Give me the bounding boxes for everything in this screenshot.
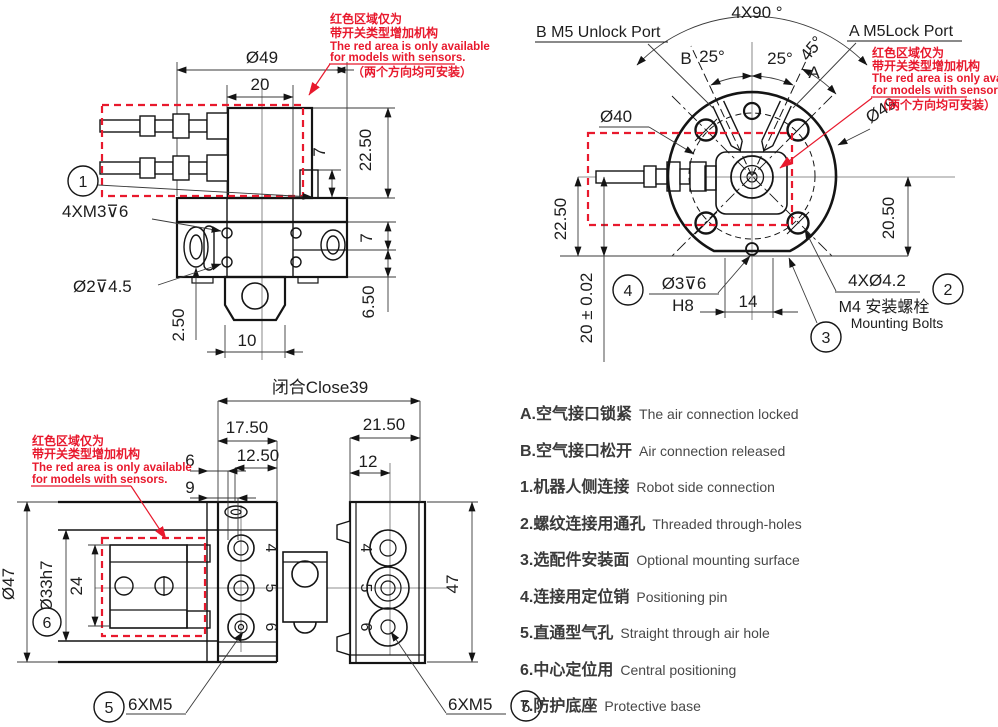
dim-d40: Ø40 xyxy=(600,107,632,126)
top-sensor-rod xyxy=(596,162,706,191)
dim-25-left: 25° xyxy=(699,47,725,66)
legend-item-7-cn: 7.防护底座 xyxy=(520,698,597,715)
dim-1250: 12.50 xyxy=(237,446,280,465)
legend-item-6-en: Central positioning xyxy=(620,662,736,678)
balloon-5-left-label: 5 xyxy=(105,700,114,717)
label-m4-cn: M4 安装螺栓 xyxy=(839,298,930,316)
legend-item-1: 1.机器人侧连接Robot side connection xyxy=(520,473,995,497)
sensor-area-highlight-side xyxy=(102,538,205,636)
legend-item-2-cn: 2.螺纹连接用通孔 xyxy=(520,516,645,533)
label-port-b-letter: B xyxy=(680,49,691,68)
note-cn1: 红色区域仅为 xyxy=(330,11,402,26)
top-linear-dims xyxy=(560,177,908,362)
dim-4x90: 4X90 ° xyxy=(731,3,782,22)
legend-item-3-en: Optional mounting surface xyxy=(636,552,799,568)
note-cn2: 带开关类型增加机构 xyxy=(330,25,438,40)
legend-item-3-cn: 3.选配件安装面 xyxy=(520,552,629,569)
dim-2250-top: 22.50 xyxy=(551,198,570,241)
legend-item-4: 4.连接用定位销Positioning pin xyxy=(520,583,995,607)
legend-item-a-en: The air connection locked xyxy=(639,406,799,422)
legend-item-5-en: Straight through air hole xyxy=(620,625,769,641)
dim-14: 14 xyxy=(739,292,758,311)
note-cn2: 带开关类型增加机构 xyxy=(872,58,980,73)
dim-d33h7: Ø33h7 xyxy=(37,560,56,611)
legend-item-2: 2.螺纹连接用通孔Threaded through-holes xyxy=(520,510,995,534)
dim-45: 45° xyxy=(796,33,827,65)
dim-9: 9 xyxy=(185,478,194,497)
dim-20: 20 xyxy=(251,75,270,94)
legend-item-1-cn: 1.机器人侧连接 xyxy=(520,479,629,496)
hole-label-5-right: 5 xyxy=(357,584,374,593)
legend-item-7-en: Protective base xyxy=(604,698,701,714)
hole-label-4-right: 4 xyxy=(357,544,374,553)
center-connector xyxy=(283,552,327,633)
balloon-4-label: 4 xyxy=(624,283,633,300)
dim-7b: 7 xyxy=(357,233,376,242)
legend-item-5: 5.直通型气孔Straight through air hole xyxy=(520,619,995,643)
hole-label-6-right: 6 xyxy=(357,623,374,632)
legend-item-6-cn: 6.中心定位用 xyxy=(520,662,613,679)
sensor-area-highlight xyxy=(102,105,303,196)
note-en1: The red area is only available xyxy=(872,73,998,85)
note-en2: for models with sensors. xyxy=(32,474,167,486)
legend-item-a-cn: A.空气接口锁紧 xyxy=(520,406,632,423)
dim-250: 2.50 xyxy=(169,308,188,341)
legend-item-7: 7.防护底座Protective base xyxy=(520,692,995,716)
dim-7a: 7 xyxy=(310,147,329,156)
note-cn3: （两个方向均可安装） xyxy=(876,97,996,112)
note-cn3: （两个方向均可安装） xyxy=(352,64,472,79)
label-m3: 4XM3⊽6 xyxy=(62,202,128,221)
sensor-rods xyxy=(100,113,228,181)
dim-25-right: 25° xyxy=(767,49,793,68)
right-side-view xyxy=(337,502,425,663)
dim-2250: 22.50 xyxy=(356,129,375,172)
label-pin: Ø3⊽6 xyxy=(662,274,707,293)
legend-item-3: 3.选配件安装面Optional mounting surface xyxy=(520,546,995,570)
dim-24: 24 xyxy=(67,577,86,596)
legend: A.空气接口锁紧The air connection locked B.空气接口… xyxy=(520,400,995,716)
legend-item-5-cn: 5.直通型气孔 xyxy=(520,625,613,642)
label-4xd42: 4XØ4.2 xyxy=(848,271,906,290)
label-port-a-letter: A xyxy=(808,63,820,82)
technical-drawing: Ø49 20 7 22.50 7 6.50 4XM3⊽6 Ø2⊽4.5 2.50… xyxy=(0,0,998,727)
top-view: 4X90 ° 45° B 25° 25° A B M5 Unlock Port … xyxy=(535,3,998,362)
label-m4-en: Mounting Bolts xyxy=(851,315,944,331)
dim-d47: Ø47 xyxy=(0,568,18,600)
note-en2: for models with sensors. xyxy=(872,85,998,97)
label-h8: H8 xyxy=(672,296,694,315)
front-view: Ø49 20 7 22.50 7 6.50 4XM3⊽6 Ø2⊽4.5 2.50… xyxy=(62,11,490,360)
legend-item-4-cn: 4.连接用定位销 xyxy=(520,589,629,606)
legend-item-b-cn: B.空气接口松开 xyxy=(520,443,632,460)
legend-item-a: A.空气接口锁紧The air connection locked xyxy=(520,400,995,424)
dim-20-tol: 20 ± 0.02 xyxy=(577,273,596,344)
dim-47: 47 xyxy=(443,575,462,594)
legend-item-b: B.空气接口松开Air connection released xyxy=(520,437,995,461)
dim-10: 10 xyxy=(238,331,257,350)
note-en2: for models with sensors. xyxy=(330,52,465,64)
sensor-note-side: 红色区域仅为 带开关类型增加机构 The red area is only av… xyxy=(31,433,192,539)
dim-d49: Ø49 xyxy=(246,48,278,67)
label-6xm5-right: 6XM5 xyxy=(448,695,492,714)
note-cn1: 红色区域仅为 xyxy=(872,45,944,60)
dim-1750: 17.50 xyxy=(226,418,269,437)
sensor-note-front: 红色区域仅为 带开关类型增加机构 The red area is only av… xyxy=(309,11,490,95)
label-6xm5-left: 6XM5 xyxy=(128,695,172,714)
legend-item-b-en: Air connection released xyxy=(639,443,785,459)
balloon-2-label: 2 xyxy=(944,282,953,299)
dim-2050: 20.50 xyxy=(879,197,898,240)
balloon-3-label: 3 xyxy=(822,330,831,347)
dim-2150: 21.50 xyxy=(363,415,406,434)
label-lock-port: A M5Lock Port xyxy=(849,23,954,40)
top-inner-body xyxy=(705,152,787,214)
legend-item-1-en: Robot side connection xyxy=(636,479,775,495)
label-unlock-port: B M5 Unlock Port xyxy=(536,24,661,41)
dim-12: 12 xyxy=(359,452,378,471)
label-d2: Ø2⊽4.5 xyxy=(73,277,132,296)
legend-item-6: 6.中心定位用Central positioning xyxy=(520,656,995,680)
note-cn1: 红色区域仅为 xyxy=(32,433,104,448)
hole-label-6-left: 6 xyxy=(262,623,279,632)
front-slots xyxy=(184,226,345,270)
hole-label-5-left: 5 xyxy=(262,584,279,593)
dim-650: 6.50 xyxy=(359,285,378,318)
dim-close39: 闭合Close39 xyxy=(272,378,368,397)
balloon-6-label: 6 xyxy=(43,615,52,632)
hole-label-4-left: 4 xyxy=(262,544,279,553)
front-dims xyxy=(98,70,388,352)
note-cn2: 带开关类型增加机构 xyxy=(32,446,140,461)
legend-item-2-en: Threaded through-holes xyxy=(652,516,801,532)
legend-item-4-en: Positioning pin xyxy=(636,589,727,605)
note-en1: The red area is only available xyxy=(32,462,192,474)
balloon-1-label: 1 xyxy=(79,174,88,191)
side-views: 4 5 6 4 5 6 闭合Close39 17.50 12.50 6 9 21… xyxy=(0,378,541,722)
